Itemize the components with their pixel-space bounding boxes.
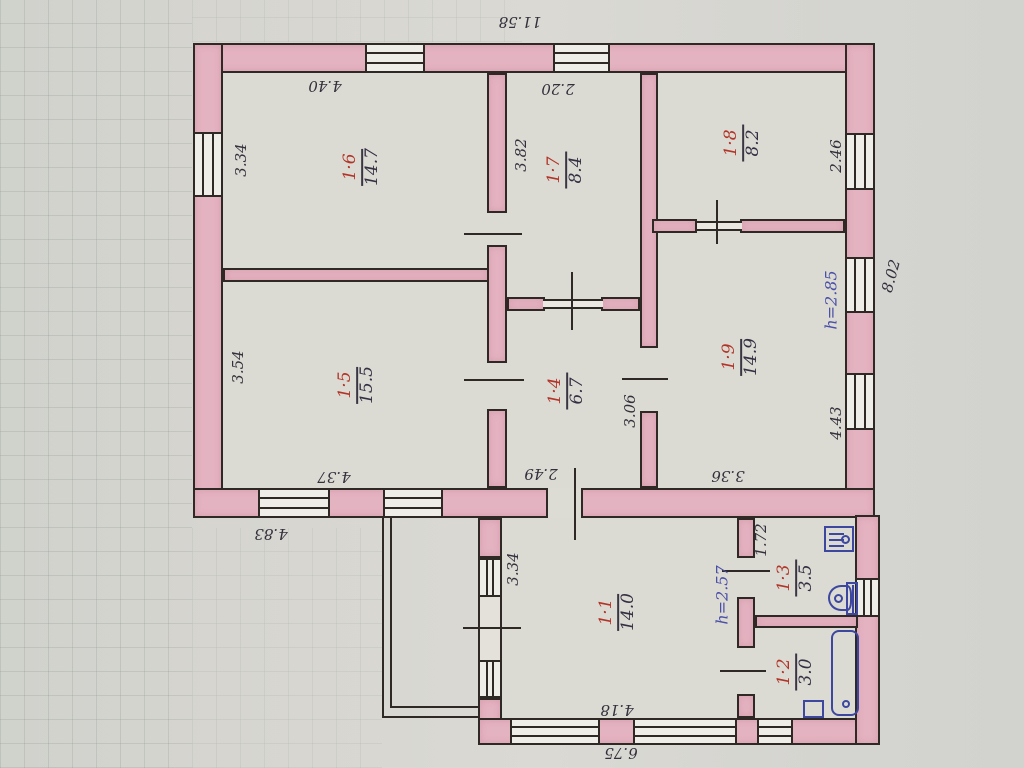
dim-room-1-7-left: 3.82 — [512, 138, 530, 171]
graph-paper-bottom-left — [192, 528, 382, 768]
room-number: 1·6 — [342, 148, 363, 185]
height-note-upper-block: h=2.85 — [822, 270, 841, 329]
room-label-1-8: 1·8 8.2 — [723, 124, 763, 161]
window-right-room-1-9-upper — [845, 257, 875, 313]
dim-overall-bottom: 6.75 — [604, 744, 637, 762]
room-label-1-7: 1·7 8.4 — [546, 151, 586, 188]
dim-room-1-8-right: 2.46 — [827, 139, 845, 172]
bathtub-icon — [831, 630, 859, 716]
window-left-room-1-6 — [193, 132, 223, 197]
window-to-veranda — [383, 488, 443, 518]
dim-room-1-9-bottom: 3.36 — [711, 467, 744, 485]
room-area: 14.7 — [363, 148, 382, 186]
window-left-room-1-1-lower — [478, 660, 502, 698]
door-mark-1-5 — [464, 379, 524, 381]
wall-between-1-1-and-1-2 — [737, 694, 755, 718]
door-threshold-1-7-to-1-4 — [543, 299, 603, 309]
room-number: 1·7 — [546, 151, 567, 188]
toilet-flush-circle — [834, 594, 843, 603]
graph-paper-top-margin — [192, 0, 522, 42]
dim-room-1-3-top: 1.72 — [752, 523, 770, 556]
wall-between-1-5-and-1-7 — [487, 245, 507, 363]
room-label-1-2: 1·2 3.0 — [776, 653, 816, 690]
graph-paper-left-margin — [0, 0, 192, 768]
wall-between-1-3-and-1-2 — [755, 615, 858, 628]
door-leaf-mark — [574, 468, 576, 540]
wall-right-lower-block — [855, 515, 880, 745]
dim-room-1-4-bottom: 2.49 — [524, 465, 557, 483]
dim-room-1-1-bottom: 4.18 — [600, 701, 633, 719]
sink-icon — [803, 700, 824, 718]
window-bottom-room-1-5 — [258, 488, 330, 518]
dim-bottom-left: 4.83 — [254, 525, 287, 543]
toilet-tank-line — [852, 585, 854, 613]
stove-burner-circle — [841, 535, 850, 544]
stove-grate-line — [829, 545, 844, 547]
door-mark-1-6 — [464, 233, 522, 235]
window-left-room-1-1-upper — [478, 558, 502, 597]
dim-room-1-6-left: 3.34 — [232, 143, 250, 176]
dim-right-overall: 8.02 — [878, 258, 904, 295]
wall-left-lower-block — [478, 518, 502, 558]
dim-room-1-1-left: 3.34 — [504, 552, 522, 585]
wall-between-1-8-and-1-9 — [652, 219, 697, 233]
wall-between-1-5-and-1-4 — [487, 409, 507, 488]
wall-between-1-7-and-1-8 — [640, 73, 658, 348]
window-right-room-1-8 — [845, 133, 875, 190]
wall-between-1-7-and-1-4 — [601, 297, 640, 311]
room-area: 3.0 — [797, 658, 816, 685]
dim-overall-top: 11.58 — [499, 13, 542, 31]
wall-between-1-8-and-1-9 — [740, 219, 845, 233]
room-area: 14.9 — [742, 338, 761, 376]
window-bottom-room-1-1-right — [633, 718, 737, 745]
room-label-1-9: 1·9 14.9 — [721, 338, 761, 376]
door-opening-1-4-to-1-1 — [546, 488, 583, 518]
room-area: 6.7 — [568, 377, 587, 404]
room-area: 8.2 — [744, 129, 763, 156]
room-number: 1·9 — [721, 338, 742, 375]
door-mark-1-8-to-1-9 — [716, 200, 718, 244]
room-number: 1·1 — [598, 593, 619, 630]
room-area: 15.5 — [358, 366, 377, 404]
room-number: 1·5 — [337, 366, 358, 403]
room-label-1-3: 1·3 3.5 — [776, 559, 816, 596]
window-top-room-1-6 — [365, 43, 425, 73]
room-number: 1·3 — [776, 559, 797, 596]
room-number: 1·4 — [547, 372, 568, 409]
window-bottom-room-1-1-left — [510, 718, 600, 745]
wall-between-1-7-and-1-4 — [507, 297, 545, 311]
wall-between-1-6-and-1-7 — [487, 73, 507, 213]
wall-between-1-1-and-1-3 — [737, 597, 755, 648]
room-label-1-1: 1·1 14.0 — [598, 593, 638, 631]
room-area: 14.0 — [619, 593, 638, 631]
wall-top-exterior — [193, 43, 875, 73]
room-number: 1·2 — [776, 653, 797, 690]
door-mark-1-1-to-1-2 — [720, 670, 766, 672]
dim-room-1-6-top: 4.40 — [308, 77, 341, 95]
wall-left-exterior — [193, 43, 223, 518]
wall-between-1-4-and-1-9 — [640, 411, 658, 488]
dim-room-1-5-bottom: 4.37 — [317, 468, 350, 486]
wall-between-1-6-and-1-5 — [223, 268, 489, 282]
room-label-1-6: 1·6 14.7 — [342, 148, 382, 186]
window-bottom-room-1-2 — [757, 718, 793, 745]
window-right-room-1-3 — [855, 578, 880, 617]
toilet-tank-icon — [846, 582, 858, 615]
room-area: 8.4 — [567, 156, 586, 183]
room-area: 3.5 — [797, 564, 816, 591]
door-threshold-1-8-to-1-9 — [697, 221, 742, 231]
room-label-1-4: 1·4 6.7 — [547, 372, 587, 409]
dim-room-1-4-right: 3.06 — [621, 394, 639, 427]
window-right-room-1-9-lower — [845, 373, 875, 430]
height-note-lower-block: h=2.57 — [713, 565, 732, 624]
dim-room-1-5-left: 3.54 — [229, 350, 247, 383]
veranda-outline-inner — [390, 518, 478, 708]
stove-icon — [824, 526, 854, 552]
stove-grate-line — [829, 533, 844, 535]
dim-room-1-9-right: 4.43 — [827, 406, 845, 439]
floor-plan-scan: 1·6 14.7 1·7 8.4 1·8 8.2 1·5 15.5 1·4 6.… — [0, 0, 1024, 768]
dim-room-1-7-top: 2.20 — [541, 80, 574, 98]
window-top-room-1-7 — [553, 43, 610, 73]
door-mark-1-7-to-1-4 — [571, 272, 573, 330]
door-mark-1-9 — [622, 378, 668, 380]
bathtub-drain-circle — [842, 700, 850, 708]
room-number: 1·8 — [723, 124, 744, 161]
room-label-1-5: 1·5 15.5 — [337, 366, 377, 404]
